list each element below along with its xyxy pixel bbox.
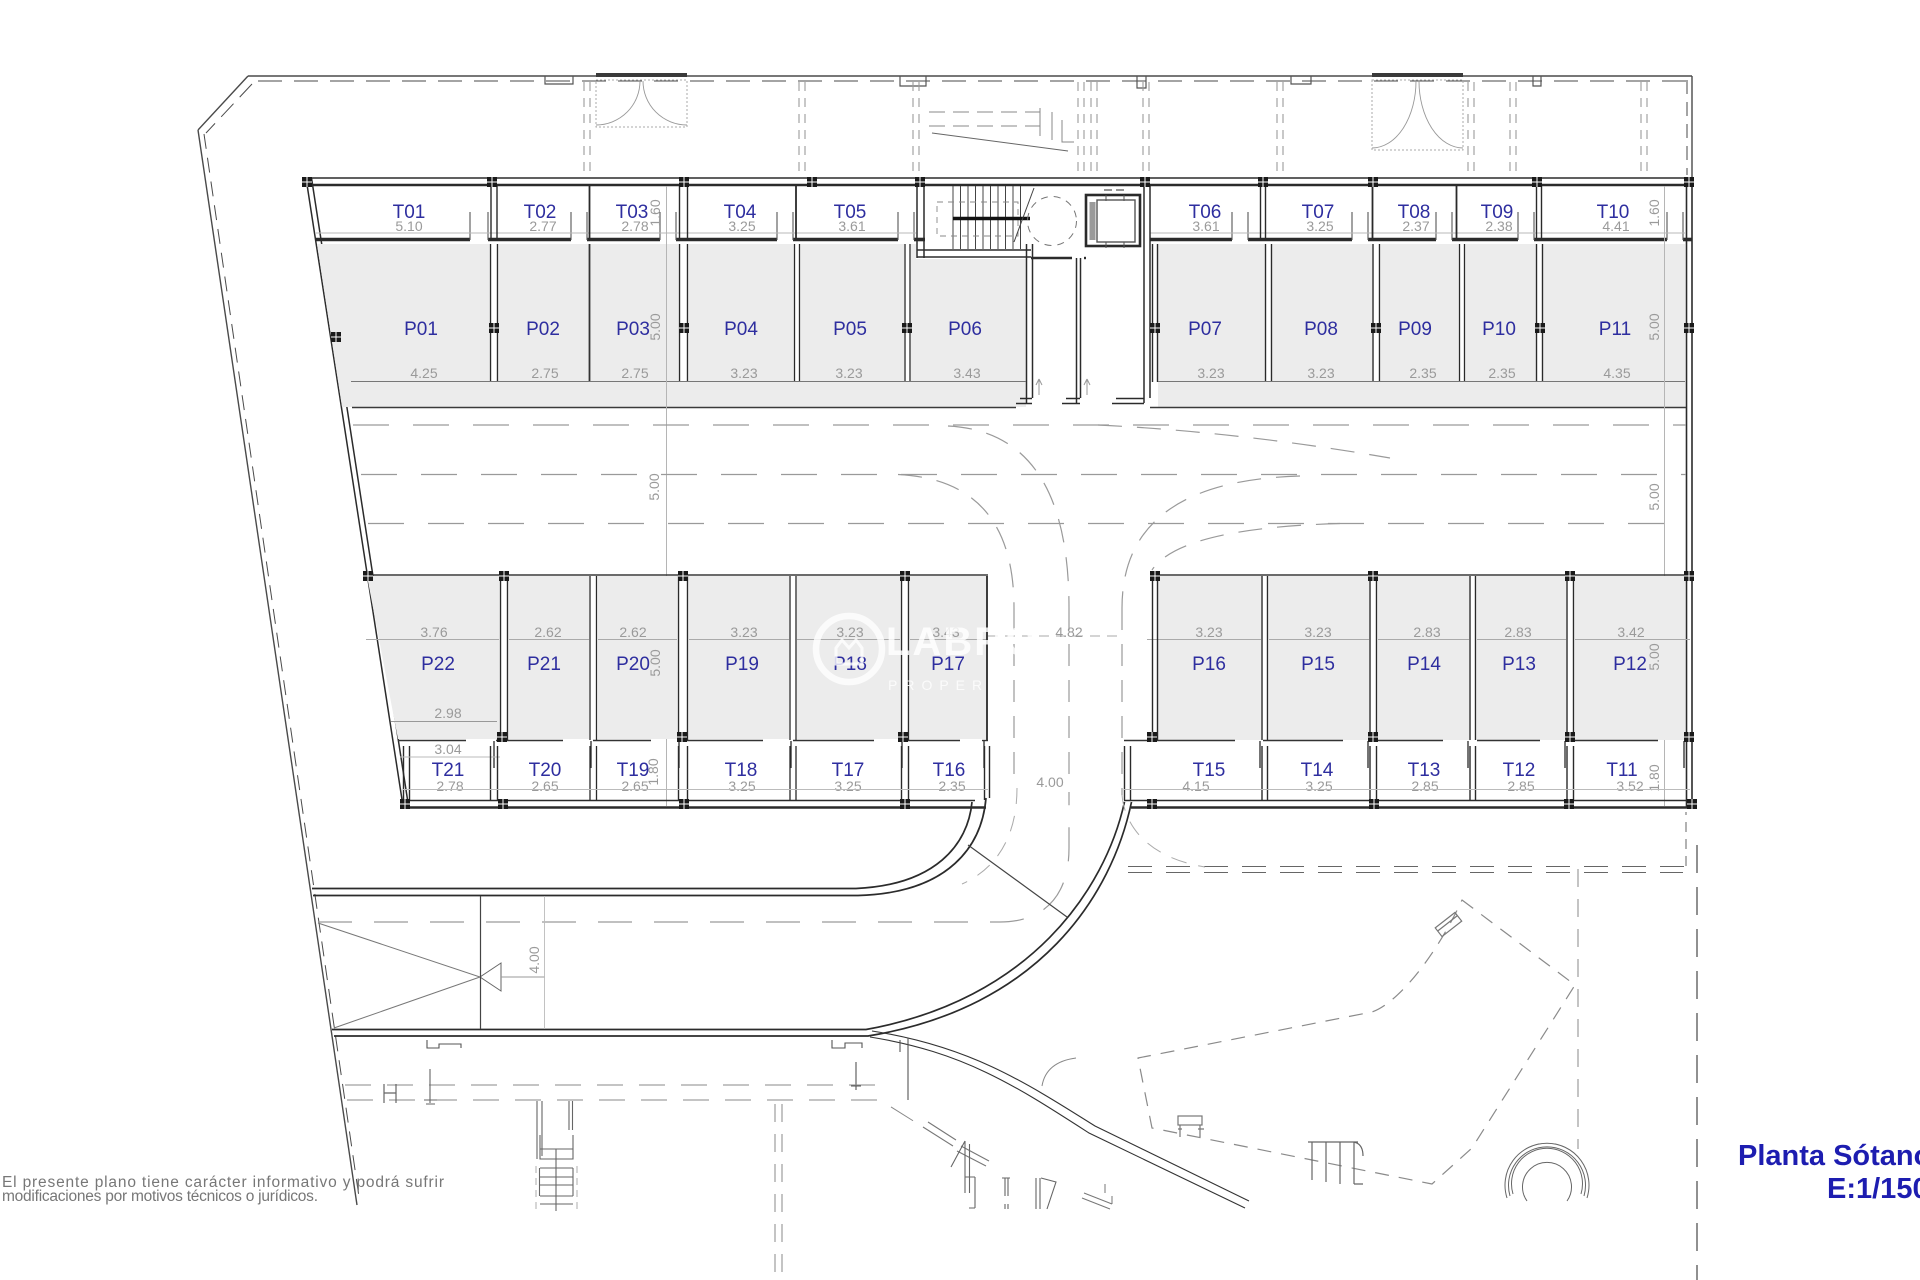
svg-text:P06: P06 — [948, 319, 982, 340]
svg-text:P22: P22 — [421, 654, 455, 675]
svg-text:Planta Sótano: Planta Sótano — [1738, 1140, 1920, 1172]
svg-text:P04: P04 — [724, 319, 758, 340]
svg-text:2.75: 2.75 — [621, 365, 648, 381]
svg-text:P09: P09 — [1398, 319, 1432, 340]
svg-text:3.23: 3.23 — [730, 624, 757, 640]
svg-text:P05: P05 — [833, 319, 867, 340]
svg-text:2.65: 2.65 — [531, 778, 558, 794]
svg-text:3.42: 3.42 — [1617, 624, 1644, 640]
svg-text:P19: P19 — [725, 654, 759, 675]
svg-text:3.61: 3.61 — [1192, 218, 1219, 234]
svg-text:2.35: 2.35 — [1409, 365, 1436, 381]
svg-text:3.23: 3.23 — [836, 624, 863, 640]
svg-text:5.00: 5.00 — [647, 649, 663, 676]
svg-text:2.38: 2.38 — [1485, 218, 1512, 234]
svg-text:LABRO: LABRO — [886, 620, 1038, 664]
svg-text:P21: P21 — [527, 654, 561, 675]
svg-text:1.80: 1.80 — [1646, 764, 1662, 791]
svg-text:P08: P08 — [1304, 319, 1338, 340]
svg-text:4.41: 4.41 — [1602, 218, 1629, 234]
svg-text:3.23: 3.23 — [730, 365, 757, 381]
svg-text:3.23: 3.23 — [1195, 624, 1222, 640]
svg-text:3.25: 3.25 — [728, 218, 755, 234]
svg-text:5.00: 5.00 — [1646, 313, 1662, 340]
svg-text:4.82: 4.82 — [1055, 624, 1082, 640]
svg-text:3.25: 3.25 — [728, 778, 755, 794]
svg-text:5.00: 5.00 — [1646, 643, 1662, 670]
svg-text:2.83: 2.83 — [1504, 624, 1531, 640]
svg-text:P11: P11 — [1599, 319, 1631, 340]
svg-text:4.35: 4.35 — [1603, 365, 1630, 381]
svg-text:3.25: 3.25 — [1305, 778, 1332, 794]
svg-text:P03: P03 — [616, 319, 650, 340]
svg-text:2.62: 2.62 — [619, 624, 646, 640]
svg-text:3.25: 3.25 — [1306, 218, 1333, 234]
svg-text:P16: P16 — [1192, 654, 1226, 675]
svg-text:PROPERTI: PROPERTI — [888, 677, 1015, 693]
svg-text:P07: P07 — [1188, 319, 1222, 340]
svg-text:2.83: 2.83 — [1413, 624, 1440, 640]
svg-text:2.35: 2.35 — [1488, 365, 1515, 381]
svg-text:3.61: 3.61 — [838, 218, 865, 234]
svg-text:3.23: 3.23 — [1304, 624, 1331, 640]
svg-text:1.60: 1.60 — [647, 199, 663, 226]
svg-text:P15: P15 — [1301, 654, 1335, 675]
svg-text:2.75: 2.75 — [531, 365, 558, 381]
svg-text:P13: P13 — [1502, 654, 1536, 675]
svg-text:5.00: 5.00 — [647, 313, 663, 340]
svg-text:2.98: 2.98 — [434, 705, 461, 721]
svg-text:2.37: 2.37 — [1402, 218, 1429, 234]
svg-text:4.25: 4.25 — [410, 365, 437, 381]
svg-text:4.00: 4.00 — [526, 946, 542, 973]
svg-text:P10: P10 — [1482, 319, 1516, 340]
svg-text:3.52: 3.52 — [1616, 778, 1643, 794]
svg-text:4.00: 4.00 — [1036, 774, 1063, 790]
svg-text:1.80: 1.80 — [645, 758, 661, 785]
svg-text:2.85: 2.85 — [1411, 778, 1438, 794]
svg-text:2.62: 2.62 — [534, 624, 561, 640]
svg-text:2.77: 2.77 — [529, 218, 556, 234]
svg-text:3.04: 3.04 — [434, 741, 461, 757]
svg-text:E:1/150: E:1/150 — [1827, 1173, 1920, 1205]
svg-text:4.15: 4.15 — [1182, 778, 1209, 794]
svg-text:3.43: 3.43 — [953, 365, 980, 381]
svg-text:3.25: 3.25 — [834, 778, 861, 794]
svg-text:5.00: 5.00 — [1646, 483, 1662, 510]
svg-text:2.35: 2.35 — [938, 778, 965, 794]
svg-text:P01: P01 — [404, 319, 438, 340]
svg-text:2.85: 2.85 — [1507, 778, 1534, 794]
svg-text:3.23: 3.23 — [1307, 365, 1334, 381]
svg-text:3.76: 3.76 — [420, 624, 447, 640]
svg-text:5.10: 5.10 — [395, 218, 422, 234]
svg-text:2.78: 2.78 — [621, 218, 648, 234]
svg-text:P14: P14 — [1407, 654, 1441, 675]
svg-text:1.60: 1.60 — [1646, 199, 1662, 226]
svg-text:3.23: 3.23 — [835, 365, 862, 381]
svg-text:5.00: 5.00 — [646, 473, 662, 500]
svg-text:2.78: 2.78 — [436, 778, 463, 794]
svg-text:P02: P02 — [526, 319, 560, 340]
svg-text:modificaciones por motivos téc: modificaciones por motivos técnicos o ju… — [2, 1188, 318, 1205]
svg-text:P12: P12 — [1613, 654, 1647, 675]
svg-text:P20: P20 — [616, 654, 650, 675]
svg-text:3.23: 3.23 — [1197, 365, 1224, 381]
